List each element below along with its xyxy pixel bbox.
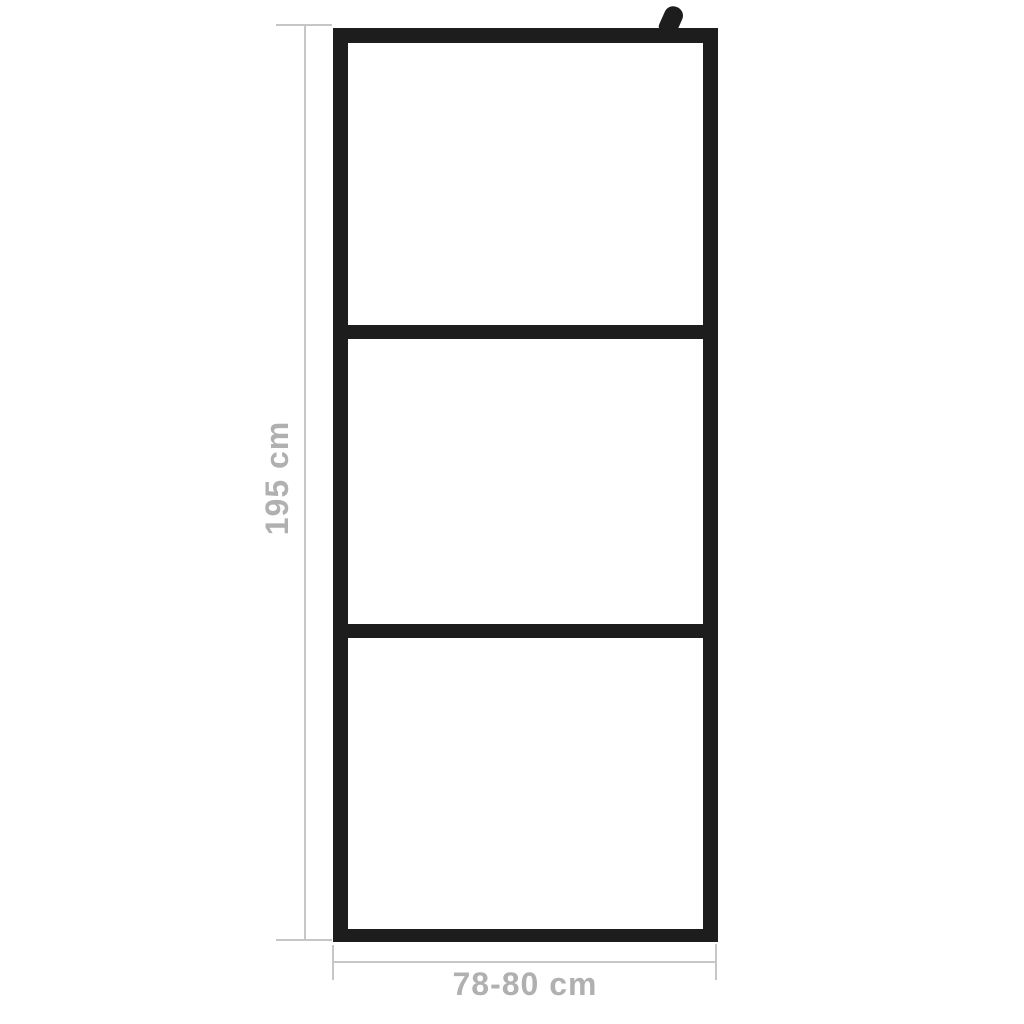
shower-screen-frame	[333, 28, 718, 942]
product-diagram-canvas: 195 cm 78-80 cm	[0, 0, 1024, 1024]
width-dimension-label: 78-80 cm	[333, 966, 717, 1003]
width-dimension-line	[333, 961, 717, 963]
height-dimension-bottom-tick	[276, 939, 332, 941]
glass-panel-bottom	[348, 638, 703, 929]
height-dimension-top-tick	[276, 24, 332, 26]
height-dimension-line	[304, 25, 306, 940]
frame-crossbar-upper	[347, 325, 704, 339]
glass-panel-top	[348, 43, 703, 325]
glass-panel-middle	[348, 339, 703, 624]
height-dimension-label: 195 cm	[257, 378, 297, 578]
frame-crossbar-lower	[347, 624, 704, 638]
